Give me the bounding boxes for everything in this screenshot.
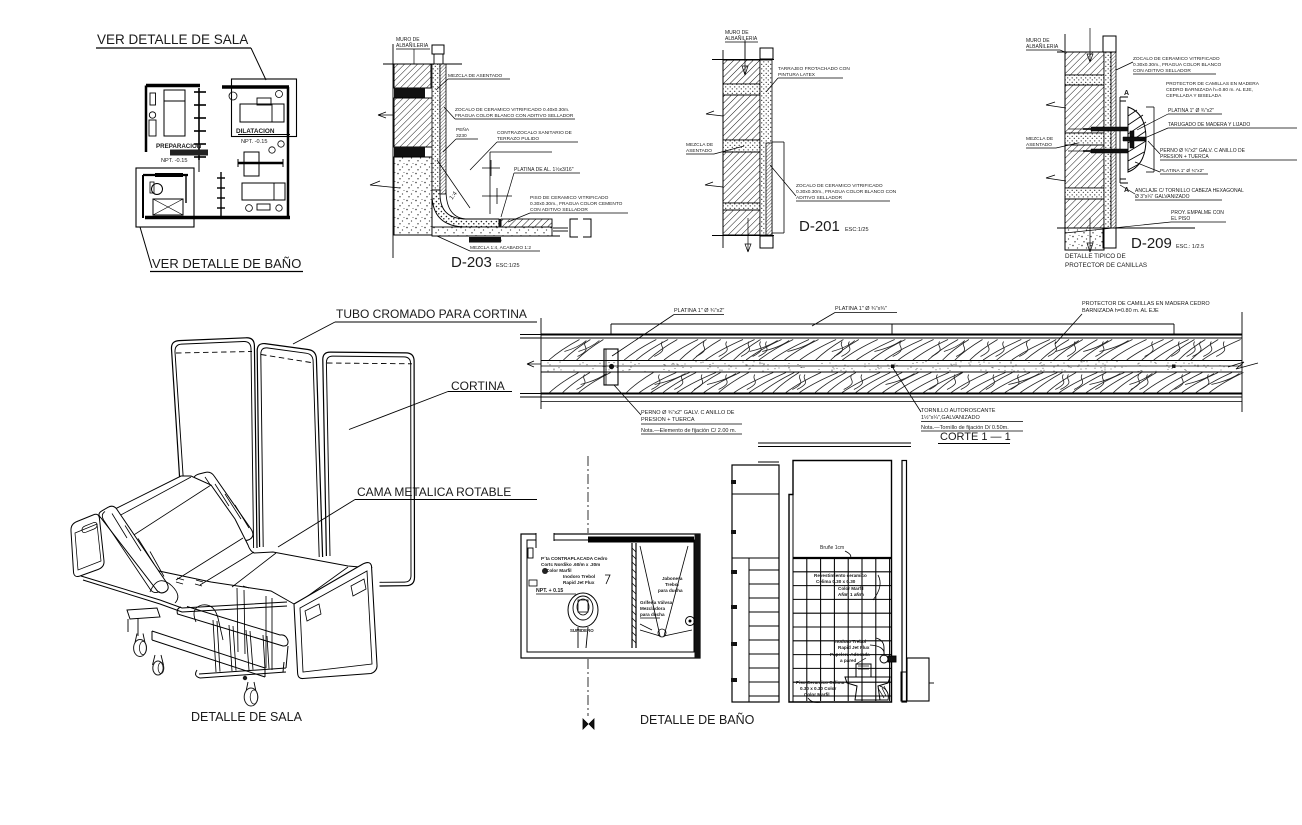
svg-text:CORTINA: CORTINA [451,379,505,393]
svg-text:Color Marfil: Color Marfil [804,692,830,697]
svg-text:PERNO Ø ¾"x2" GALV. C ANILL: PERNO Ø ¾"x2" GALV. C ANILLO DE [641,410,735,416]
svg-text:ZOCALO DE CERAMICO VITRIFICADO: ZOCALO DE CERAMICO VITRIFICADO [1133,56,1220,62]
svg-text:CON ADITIVO SELLADOR: CON ADITIVO SELLADOR [1133,68,1191,74]
svg-text:ALBAÑILERIA: ALBAÑILERIA [396,42,429,49]
svg-text:PEÑA: PEÑA [456,126,470,133]
svg-text:DETALLE DE SALA: DETALLE DE SALA [191,710,303,724]
svg-text:PISO DE CERAMICO VITRIFICADO: PISO DE CERAMICO VITRIFICADO [530,195,609,201]
svg-text:ASENTADO: ASENTADO [686,148,712,154]
svg-text:PLATINA 1" Ø ¾"x2": PLATINA 1" Ø ¾"x2" [1168,108,1214,114]
svg-text:TARRAJEO FROTACHADO CON: TARRAJEO FROTACHADO CON [778,66,850,72]
svg-text:ESC:1/25: ESC:1/25 [496,263,520,269]
svg-text:Celima 0.30 x 0.30: Celima 0.30 x 0.30 [816,579,856,584]
svg-text:ESC:1/25: ESC:1/25 [845,227,869,233]
svg-text:ADITIVO SELLADOR: ADITIVO SELLADOR [796,195,843,201]
svg-text:Color Marfil: Color Marfil [546,568,572,573]
svg-text:TERRAZO PULIDO: TERRAZO PULIDO [497,136,539,142]
svg-text:CEDRO BARNIZADA h=0.80 m. AL E: CEDRO BARNIZADA h=0.80 m. AL EJE, [1166,87,1253,93]
svg-text:TARUGADO DE MADERA Y LIJADO: TARUGADO DE MADERA Y LIJADO [1168,122,1250,128]
svg-text:CONTRAZOCALO SANITARIO DE: CONTRAZOCALO SANITARIO DE [497,130,572,136]
svg-text:PRESION + TUERCA: PRESION + TUERCA [1160,154,1209,160]
svg-text:Color Marfil: Color Marfil [838,586,864,591]
svg-text:Grifería Válvsa: Grifería Válvsa [640,600,673,605]
svg-text:Bruñe 1cm: Bruñe 1cm [820,545,844,551]
svg-text:ESC.: 1/2.5: ESC.: 1/2.5 [1176,244,1204,250]
svg-text:Nota.—Elemento de fijación: Nota.—Elemento de fijación C/ 2.00 m. [641,428,737,434]
svg-text:a pared: a pared [840,658,857,663]
svg-text:MEZCLA DE: MEZCLA DE [686,142,713,148]
svg-text:0.30x0.30m., FRAGUA COLOR CEM: 0.30x0.30m., FRAGUA COLOR CEMENTO [530,201,623,207]
svg-text:PRESION + TUERCA: PRESION + TUERCA [641,417,695,423]
svg-text:PROTECTOR DE CAMILLAS EN MADER: PROTECTOR DE CAMILLAS EN MADERA CEDRO [1082,301,1210,307]
svg-text:Revestimiento ceramico: Revestimiento ceramico [814,573,867,578]
svg-text:para ducha: para ducha [640,612,665,617]
svg-text:0.30 x 0.30 Color: 0.30 x 0.30 Color [800,686,836,691]
svg-text:TUBO CROMADO PARA CORTINA: TUBO CROMADO PARA CORTINA [336,307,527,321]
svg-text:Inodoro Trebol: Inodoro Trebol [563,574,595,579]
svg-text:PROTECTOR DE CAMILLAS EN MADER: PROTECTOR DE CAMILLAS EN MADERA [1166,81,1260,87]
svg-text:Jabonera: Jabonera [662,576,683,581]
svg-text:Inodoro Trebol: Inodoro Trebol [834,639,866,644]
svg-text:MEZCLA 1:4, ACABADO 1:2: MEZCLA 1:4, ACABADO 1:2 [470,245,531,251]
svg-text:ALBAÑILERIA: ALBAÑILERIA [725,35,758,42]
svg-text:BARNIZADA h=0.80 m. AL EJE: BARNIZADA h=0.80 m. AL EJE [1082,308,1159,314]
svg-text:NPT. + 0.15: NPT. + 0.15 [536,588,563,594]
svg-text:Ø 3"x¼" GALVANIZADO: Ø 3"x¼" GALVANIZADO [1135,194,1190,200]
svg-text:1½"x¼",GALVANIZADO: 1½"x¼",GALVANIZADO [921,414,980,421]
svg-text:ZOCALO DE CERAMICO VITRIFICADO: ZOCALO DE CERAMICO VITRIFICADO [796,183,883,189]
svg-text:PLATINA 1" Ø ¾"x¾": PLATINA 1" Ø ¾"x¾" [835,306,887,312]
svg-text:Cortc Nordiko .60/m x .30m: Cortc Nordiko .60/m x .30m [541,562,600,567]
svg-text:CON ADITIVO SELLADOR: CON ADITIVO SELLADOR [530,207,588,213]
svg-text:ALBAÑILERIA: ALBAÑILERIA [1026,43,1059,50]
svg-text:PREPARACION: PREPARACION [156,143,202,150]
svg-text:Trebol: Trebol [665,582,679,587]
svg-text:AÑm 1 aÑm: AÑm 1 aÑm [838,591,864,597]
svg-text:para ducha: para ducha [658,588,683,593]
svg-text:NPT. -0.15: NPT. -0.15 [241,139,267,145]
svg-text:0.30x0.30m., FRAGUA COLOR BLA: 0.30x0.30m., FRAGUA COLOR BLANCO [1133,62,1222,68]
svg-text:CAMA METALICA ROTABLE: CAMA METALICA ROTABLE [357,485,511,499]
svg-text:D-203: D-203 [451,254,492,271]
svg-text:NPT. -0.15: NPT. -0.15 [161,158,187,164]
svg-text:FRAGUA COLOR BLANCO CON ADITIV: FRAGUA COLOR BLANCO CON ADITIVO SELLADOR [455,113,574,119]
svg-text:ZOCALO DE CERAMICO VITRIFICADO: ZOCALO DE CERAMICO VITRIFICADO 0.40x0.30… [455,107,569,113]
svg-text:PLATINA 1" Ø ¾"x2": PLATINA 1" Ø ¾"x2" [1160,168,1204,174]
svg-text:EL PISO: EL PISO [1171,216,1190,222]
svg-text:DETALLE TIPICO DE: DETALLE TIPICO DE [1065,253,1126,260]
svg-text:VER DETALLE DE SALA: VER DETALLE DE SALA [97,32,248,47]
svg-text:P´ta CONTRAPLACADA Cedro: P´ta CONTRAPLACADA Cedro [541,556,608,561]
svg-text:Rapid Jet Flux: Rapid Jet Flux [563,580,595,585]
svg-text:MEZCLA DE: MEZCLA DE [1026,136,1053,142]
svg-text:0.30x0.30m., FRAGUA COLOR BLA: 0.30x0.30m., FRAGUA COLOR BLANCO CON [796,189,897,195]
svg-text:PROTECTOR DE CANILLAS: PROTECTOR DE CANILLAS [1065,262,1147,269]
svg-text:Rapid Jet Flux: Rapid Jet Flux [838,645,870,650]
svg-text:MEZCLA DE ASENTADO: MEZCLA DE ASENTADO [448,73,503,79]
svg-text:PINTURA LATEX: PINTURA LATEX [778,72,816,78]
svg-text:VER DETALLE DE BAÑO: VER DETALLE DE BAÑO [152,256,301,271]
svg-text:DILATACION: DILATACION [236,128,275,135]
svg-text:D-201: D-201 [799,218,840,235]
svg-text:TORNILLO AUTOROSCANTE: TORNILLO AUTOROSCANTE [921,408,996,414]
svg-text:PLATINA DE AL. 1½x3/16": PLATINA DE AL. 1½x3/16" [514,166,574,173]
svg-text:PLATINA 1" Ø ¾"x2": PLATINA 1" Ø ¾"x2" [674,308,724,314]
svg-text:D-209: D-209 [1131,235,1172,252]
svg-text:CORTE 1 — 1: CORTE 1 — 1 [940,431,1011,443]
svg-text:DETALLE DE BAÑO: DETALLE DE BAÑO [640,713,755,727]
svg-text:SUMIDERO: SUMIDERO [570,628,594,633]
svg-text:ASENTADO: ASENTADO [1026,142,1052,148]
svg-text:3230: 3230 [456,133,467,139]
svg-text:Papelera Adosada: Papelera Adosada [830,652,870,657]
svg-text:Piso Ceramico Celima: Piso Ceramico Celima [796,680,845,685]
svg-text:A: A [1124,90,1129,97]
svg-text:CEPILLADA Y BISELADA: CEPILLADA Y BISELADA [1166,93,1222,99]
svg-text:Mezcladora: Mezcladora [640,606,665,611]
